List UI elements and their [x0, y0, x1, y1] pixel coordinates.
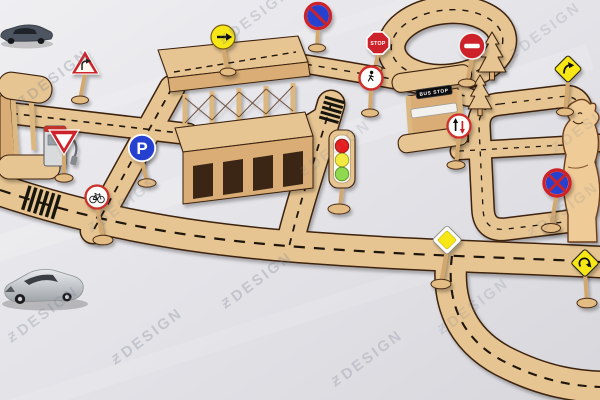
- no-entry-bar: [464, 44, 480, 49]
- toy-road-scene: Ƶ DESIGN: [0, 0, 600, 400]
- scene-canvas: Ƶ DESIGN: [0, 0, 600, 400]
- stop-label: STOP: [370, 41, 385, 47]
- green-light: [335, 167, 349, 181]
- parking-label: P: [136, 139, 147, 158]
